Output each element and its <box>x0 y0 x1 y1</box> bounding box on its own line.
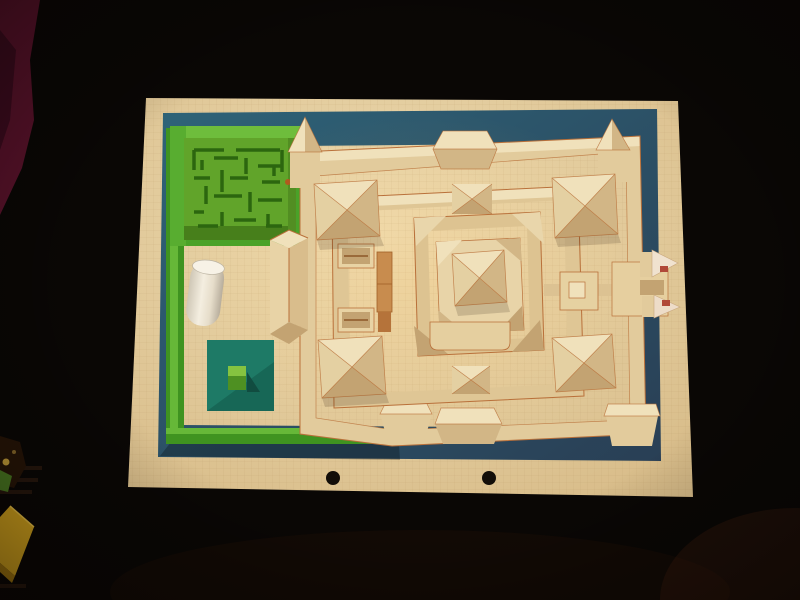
photo-vignette <box>0 0 800 600</box>
photo-of-paper-castle-model <box>0 0 800 600</box>
scene-canvas <box>0 0 800 600</box>
